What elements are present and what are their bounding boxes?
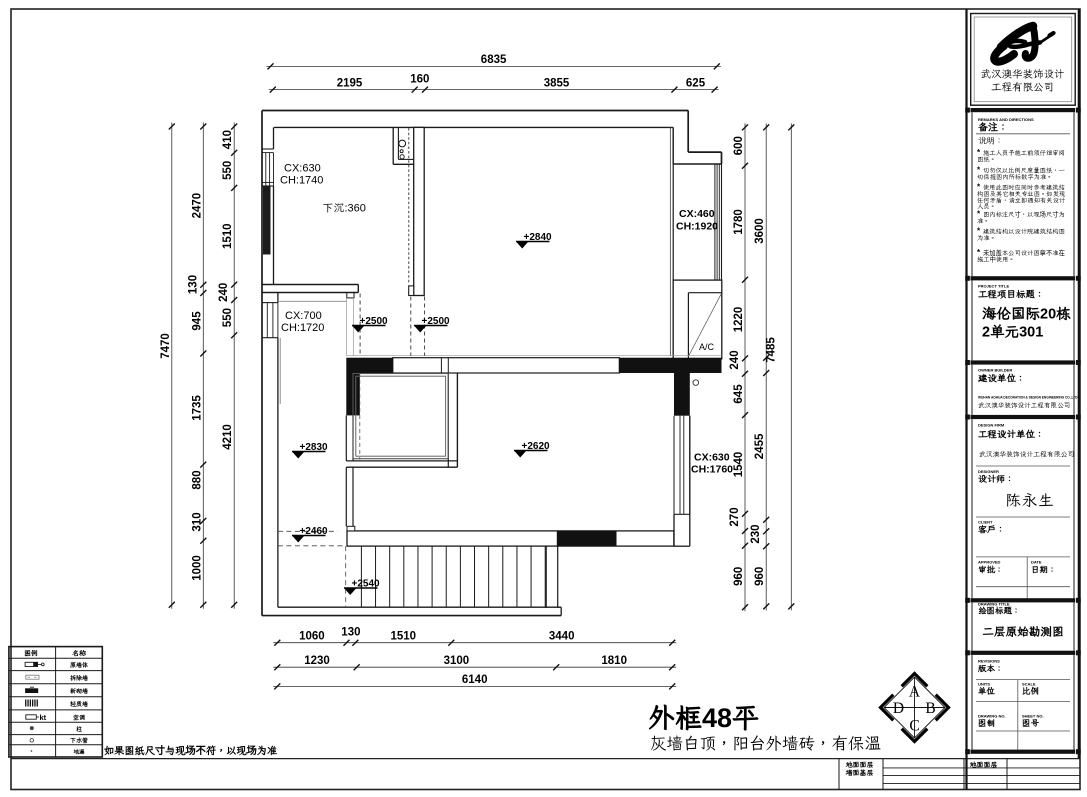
svg-text:CX:630: CX:630 [284, 163, 321, 175]
svg-text:6140: 6140 [462, 674, 488, 686]
svg-text:柱: 柱 [76, 725, 82, 733]
svg-text:图制: 图制 [978, 718, 995, 729]
svg-text:B: B [925, 700, 935, 717]
svg-text:设计师：: 设计师： [978, 473, 1014, 485]
svg-text:地漏: 地漏 [72, 748, 85, 756]
svg-text:C: C [909, 718, 919, 735]
svg-text:960: 960 [754, 567, 766, 586]
svg-text:CX:630: CX:630 [694, 452, 730, 464]
svg-text:1220: 1220 [733, 307, 745, 333]
svg-text:+2620: +2620 [522, 441, 551, 452]
svg-text:下沉:360: 下沉:360 [323, 202, 366, 216]
svg-text:绘图标题：: 绘图标题： [978, 606, 1021, 617]
svg-text:600: 600 [733, 136, 745, 155]
svg-text:图例: 图例 [24, 649, 38, 658]
svg-text:客户：: 客户： [978, 524, 1005, 536]
svg-text:410: 410 [222, 130, 234, 149]
svg-text:切保握图内所标数字为准。: 切保握图内所标数字为准。 [977, 172, 1053, 181]
svg-text:1540: 1540 [733, 452, 745, 478]
svg-text:图号: 图号 [1022, 718, 1040, 729]
svg-text:施工中使用。: 施工中使用。 [977, 254, 1015, 263]
svg-text:二层原始勘测图: 二层原始勘测图 [982, 625, 1063, 640]
svg-text:地面面层: 地面面层 [970, 760, 998, 769]
svg-text:1780: 1780 [733, 209, 745, 235]
svg-text:图内标注尺寸，以现场尺寸为: 图内标注尺寸，以现场尺寸为 [983, 210, 1065, 219]
svg-text:单位: 单位 [978, 686, 996, 697]
svg-text:比例: 比例 [1022, 686, 1039, 697]
svg-text:+2840: +2840 [524, 232, 553, 243]
svg-text:CH:1920: CH:1920 [676, 221, 718, 233]
svg-text:如果图纸尺寸与现场不符，以现场为准: 如果图纸尺寸与现场不符，以现场为准 [104, 743, 278, 757]
svg-text:为准。: 为准。 [977, 233, 996, 242]
svg-text:2470: 2470 [191, 193, 203, 219]
svg-text:原墙体: 原墙体 [69, 661, 89, 669]
svg-text:550: 550 [222, 161, 234, 180]
svg-text:工程设计单位：: 工程设计单位： [978, 428, 1045, 441]
svg-text:陈永生: 陈永生 [1005, 491, 1055, 511]
svg-text:A: A [909, 684, 921, 701]
svg-text:A/C: A/C [699, 342, 715, 352]
svg-text:270: 270 [729, 507, 741, 526]
svg-text:2455: 2455 [754, 433, 766, 459]
svg-text:武汉澳华装饰设计工程有限公司: 武汉澳华装饰设计工程有限公司 [979, 450, 1074, 459]
svg-text:建设单位：: 建设单位： [977, 372, 1026, 385]
svg-text:3600: 3600 [754, 218, 766, 244]
svg-text:1735: 1735 [191, 395, 203, 421]
svg-text:审批：: 审批： [978, 565, 1004, 576]
svg-text:kt: kt [40, 713, 47, 722]
svg-text:名称: 名称 [72, 649, 86, 658]
svg-text:版本：: 版本： [978, 664, 1004, 675]
svg-text:CH:1720: CH:1720 [281, 322, 324, 334]
svg-text:625: 625 [686, 77, 706, 89]
svg-text:WUHAN AOHUA DECORATION & DESIG: WUHAN AOHUA DECORATION & DESIGN ENGINEER… [978, 396, 1078, 400]
svg-text:2195: 2195 [337, 77, 363, 89]
svg-text:+2830: +2830 [300, 442, 329, 453]
svg-text:图纸。: 图纸。 [977, 154, 996, 163]
svg-text:960: 960 [733, 567, 745, 586]
svg-text:1230: 1230 [304, 655, 330, 667]
svg-text:CH:1740: CH:1740 [280, 175, 323, 187]
svg-text:D: D [893, 700, 904, 717]
svg-text:拆除墙: 拆除墙 [69, 674, 88, 682]
svg-text:+2540: +2540 [352, 579, 381, 590]
svg-text:4210: 4210 [222, 424, 234, 450]
svg-text:7470: 7470 [160, 333, 172, 359]
svg-text:+2500: +2500 [422, 316, 451, 327]
svg-text:空调: 空调 [73, 714, 85, 722]
svg-text:1510: 1510 [222, 223, 234, 249]
svg-text:新砌墙: 新砌墙 [70, 687, 88, 695]
svg-text:准。: 准。 [977, 216, 990, 225]
svg-text:130: 130 [187, 275, 199, 294]
svg-text:CX:700: CX:700 [285, 310, 322, 322]
svg-text:880: 880 [191, 470, 203, 489]
svg-text:230: 230 [750, 524, 762, 543]
svg-text:3100: 3100 [444, 655, 470, 667]
svg-text:CH:1760: CH:1760 [691, 464, 733, 476]
svg-text:武汉澳华装饰设计工程有限公司: 武汉澳华装饰设计工程有限公司 [978, 401, 1070, 410]
svg-text:240: 240 [218, 283, 230, 302]
svg-text:2单元301: 2单元301 [982, 323, 1043, 342]
svg-text:墙面基层: 墙面基层 [846, 768, 874, 777]
svg-text:310: 310 [191, 512, 203, 531]
svg-text:645: 645 [733, 384, 745, 404]
svg-text:武汉澳华装饰设计: 武汉澳华装饰设计 [981, 67, 1065, 81]
svg-text:550: 550 [222, 308, 234, 327]
svg-text:1000: 1000 [191, 555, 203, 581]
svg-text:1810: 1810 [601, 655, 627, 667]
svg-text:3855: 3855 [544, 77, 570, 89]
svg-text:1510: 1510 [391, 631, 417, 643]
svg-text:灰墙白顶，阳台外墙砖，有保温: 灰墙白顶，阳台外墙砖，有保温 [650, 732, 882, 754]
svg-text:海伦国际20栋: 海伦国际20栋 [982, 305, 1071, 324]
svg-text:945: 945 [191, 311, 203, 331]
svg-text:CX:460: CX:460 [679, 208, 715, 220]
svg-text:备注：: 备注： [978, 121, 1008, 134]
svg-text:日期：: 日期： [1031, 565, 1057, 576]
svg-text:+2500: +2500 [360, 316, 389, 327]
svg-text:160: 160 [410, 73, 429, 85]
svg-text:+2460: +2460 [300, 526, 329, 537]
svg-text:7485: 7485 [765, 337, 777, 363]
svg-text:下水管: 下水管 [69, 737, 88, 745]
svg-text:1060: 1060 [299, 631, 325, 643]
svg-text:6835: 6835 [481, 54, 507, 66]
svg-text:说明：: 说明： [978, 136, 1004, 147]
svg-text:工程项目标题：: 工程项目标题： [978, 288, 1045, 301]
svg-text:外框48平: 外框48平 [648, 699, 759, 735]
svg-text:工程有限公司: 工程有限公司 [991, 80, 1054, 94]
svg-text:轻质墙: 轻质墙 [69, 700, 88, 708]
svg-text:130: 130 [341, 627, 360, 639]
svg-text:240: 240 [729, 350, 741, 369]
svg-text:3440: 3440 [549, 631, 575, 643]
